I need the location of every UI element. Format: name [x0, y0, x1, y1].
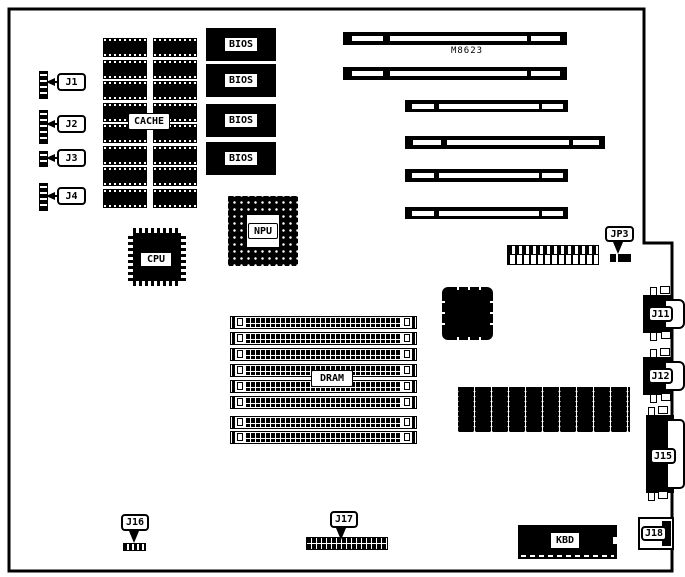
kbd-label: KBD [551, 533, 579, 548]
qfp-chip [442, 287, 493, 340]
simm-socket-1 [230, 316, 417, 329]
j11-pin-tab [660, 286, 670, 294]
board-model-label: M8623 [437, 46, 497, 56]
j15-pin-tab [648, 407, 655, 416]
cache-chip [103, 60, 147, 79]
callout-jp3: JP3 [605, 226, 634, 242]
expansion-slot-5 [405, 169, 568, 182]
j16-label: J16 [126, 517, 144, 528]
callout-j15: J15 [650, 448, 676, 464]
bios-label-3: BIOS [225, 114, 257, 127]
jp3-jumper [610, 254, 631, 262]
j3-arrow-icon [46, 154, 55, 162]
j1-arrow-icon [46, 78, 55, 86]
expansion-slot-1 [343, 32, 567, 45]
callout-j4: J4 [57, 187, 86, 205]
simm-socket-2 [230, 332, 417, 345]
kbd-pin-dashes [521, 555, 614, 557]
expansion-slot-3 [405, 100, 568, 112]
callout-j11: J11 [648, 306, 673, 322]
simm-socket-8 [230, 431, 417, 444]
callout-j3: J3 [57, 149, 86, 167]
motherboard-diagram: J1 J2 J3 J4 CACHE BIOS BIOS BIOS BIOS M8… [0, 0, 685, 577]
j18-label: J18 [645, 528, 663, 539]
j17-label: J17 [335, 514, 353, 525]
expansion-slot-2 [343, 67, 567, 80]
callout-j18: J18 [641, 526, 667, 541]
cpu-pins-right [181, 233, 186, 281]
j15-pin-tab [658, 406, 668, 414]
j12-label: J12 [651, 371, 669, 382]
cpu-pins-bottom [133, 281, 181, 286]
qfp-notches-right [490, 293, 493, 334]
bios-chip-4: BIOS [206, 142, 276, 175]
j15-pin-tab [648, 492, 655, 501]
j3-label: J3 [65, 153, 77, 164]
j2-label: J2 [65, 119, 77, 130]
callout-j12: J12 [648, 368, 673, 384]
callout-j17: J17 [330, 511, 358, 528]
j17-arrow-icon [336, 528, 346, 540]
j16-arrow-icon [129, 531, 139, 543]
callout-j2: J2 [57, 115, 86, 133]
j1-label: J1 [65, 77, 77, 88]
jp3-arrow-icon [613, 242, 623, 254]
j15-pin-tab [658, 491, 668, 499]
dram-label: DRAM [311, 370, 353, 387]
j12-pin-tab [650, 349, 657, 358]
simm-socket-7 [230, 416, 417, 429]
npu-socket: NPU [228, 196, 298, 266]
power-connector [507, 245, 599, 265]
qfp-notches-left [442, 293, 445, 334]
cache-chip [103, 146, 147, 165]
cache-chip [153, 167, 197, 186]
cache-chip [103, 38, 147, 57]
j12-pin-tab [660, 348, 670, 356]
cache-chip [153, 146, 197, 165]
bios-chip-1: BIOS [206, 28, 276, 61]
keyboard-controller-chip: KBD [518, 525, 617, 559]
cache-chip [103, 81, 147, 100]
npu-label: NPU [248, 223, 278, 239]
cpu-label: CPU [140, 252, 172, 267]
j11-label: J11 [651, 309, 669, 320]
cache-chip [153, 189, 197, 208]
j11-pin-tab [661, 331, 671, 339]
expansion-slot-4 [405, 136, 605, 149]
cache-chip [153, 81, 197, 100]
kbd-notch [613, 537, 618, 544]
simm-socket-6 [230, 396, 417, 409]
j4-label: J4 [65, 191, 77, 202]
cache-chip [103, 167, 147, 186]
simm-socket-3 [230, 348, 417, 361]
cache-chip [153, 60, 197, 79]
j4-arrow-icon [46, 192, 55, 200]
callout-j16: J16 [121, 514, 149, 531]
bios-label-4: BIOS [225, 152, 257, 165]
qfp-notches-bottom [448, 337, 487, 340]
j16-pin-header [123, 543, 146, 551]
j11-pin-tab [650, 332, 657, 341]
cache-label: CACHE [128, 113, 170, 130]
expansion-slot-6 [405, 207, 568, 219]
cpu-chip: CPU [128, 228, 186, 286]
bios-chip-3: BIOS [206, 104, 276, 137]
callout-j1: J1 [57, 73, 86, 91]
j17-pin-header [306, 537, 388, 550]
memory-chip-row [458, 387, 630, 432]
bios-label-2: BIOS [225, 74, 257, 87]
cache-chip [103, 189, 147, 208]
j11-pin-tab [650, 287, 657, 296]
qfp-notches-top [448, 287, 487, 290]
j12-pin-tab [650, 394, 657, 403]
j12-pin-tab [661, 393, 671, 401]
jp3-label: JP3 [610, 229, 628, 240]
bios-chip-2: BIOS [206, 64, 276, 97]
cache-chip [153, 38, 197, 57]
j15-label: J15 [654, 451, 672, 462]
bios-label-1: BIOS [225, 38, 257, 51]
j2-arrow-icon [46, 120, 55, 128]
